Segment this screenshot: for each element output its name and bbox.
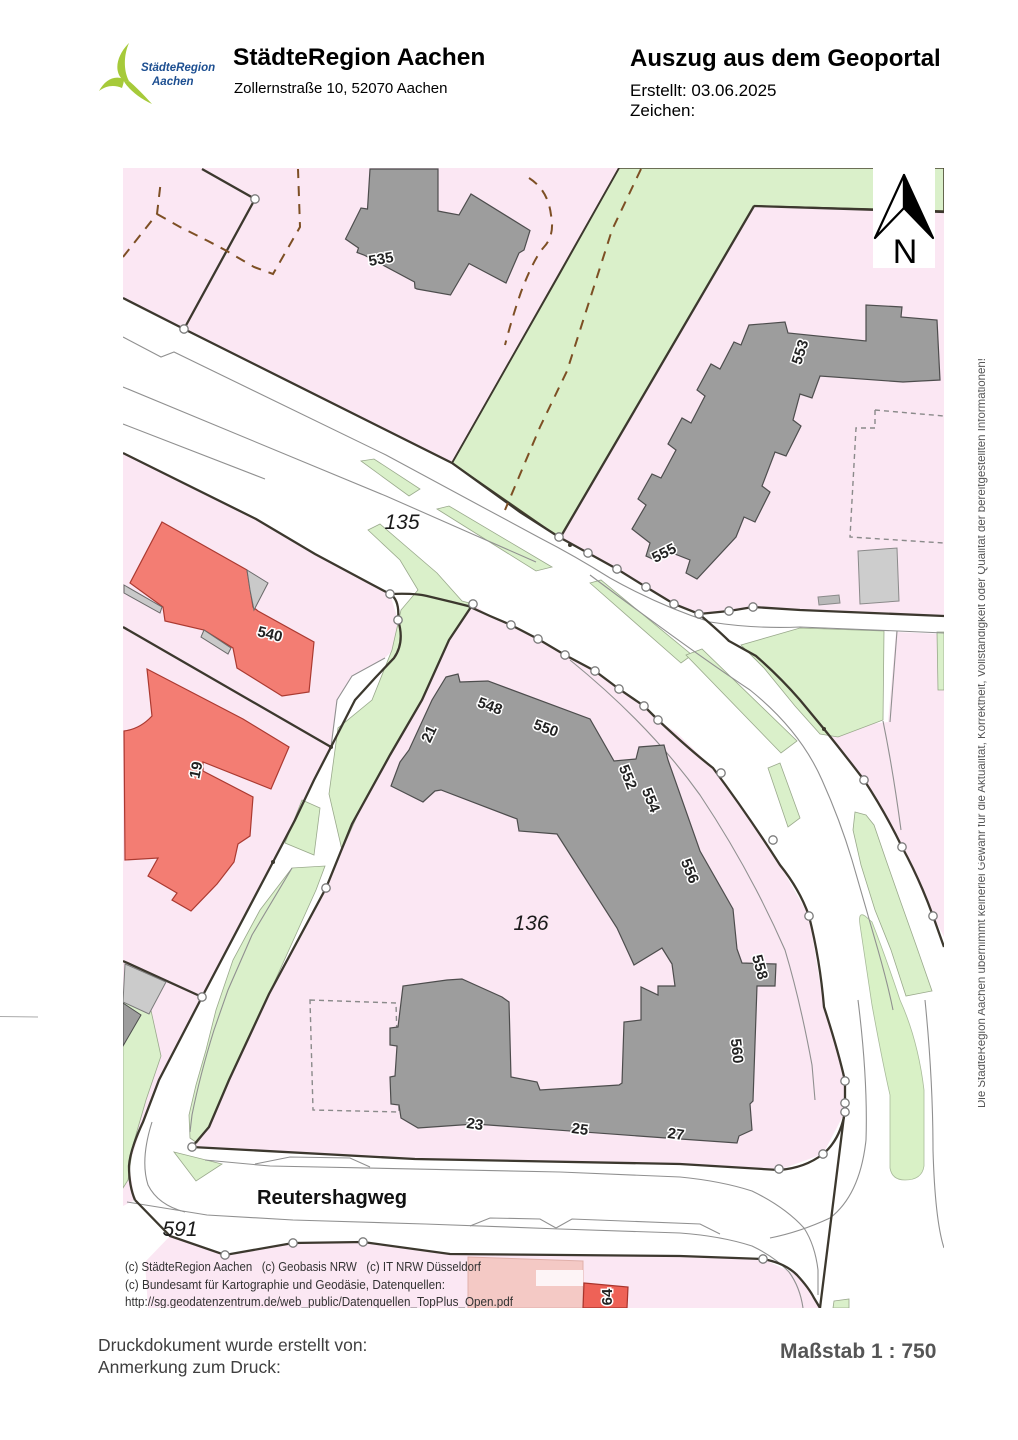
svg-text:25: 25	[570, 1120, 589, 1139]
svg-text:19: 19	[186, 760, 206, 780]
svg-text:N: N	[893, 233, 918, 271]
svg-text:136: 136	[513, 912, 548, 935]
svg-text:560: 560	[727, 1038, 747, 1065]
svg-text:http://sg.geodatenzentrum.de/w: http://sg.geodatenzentrum.de/web_public/…	[125, 1295, 513, 1309]
svg-text:23: 23	[465, 1115, 484, 1134]
svg-text:Reutershagweg: Reutershagweg	[257, 1186, 407, 1209]
svg-text:591: 591	[162, 1218, 197, 1241]
svg-text:(c) Bundesamt für Kartographie: (c) Bundesamt für Kartographie und Geodä…	[125, 1278, 445, 1292]
svg-text:(c) StädteRegion Aachen (c): (c) StädteRegion Aachen (c) Geobasis NRW…	[125, 1260, 481, 1274]
svg-text:135: 135	[384, 511, 419, 534]
svg-text:64: 64	[599, 1288, 616, 1305]
svg-text:27: 27	[666, 1125, 685, 1144]
